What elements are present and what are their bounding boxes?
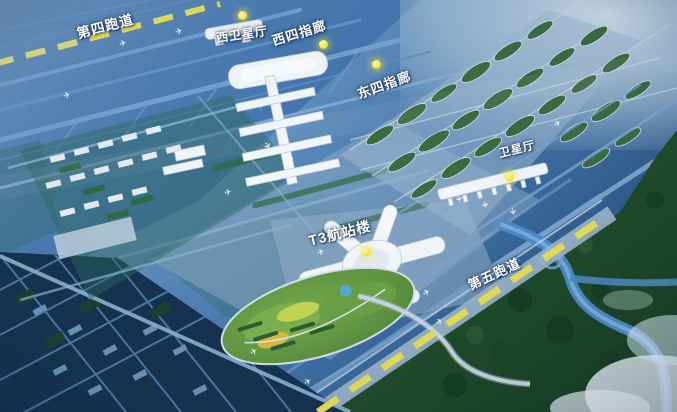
marker-dot-east-satellite-icon [505, 172, 514, 181]
marker-dot-east-pier4-icon [372, 60, 381, 69]
airport-masterplan-rendering: ✈ ✈ ✈ ✈ ✈ ✈ ✈ ✈ ✈ ✈ ✈ ✈ ✈ ✈ ✈ ✈ 第四跑道 西卫星… [0, 0, 677, 412]
clouds-and-glare [0, 0, 677, 412]
marker-dot-t3-icon [362, 247, 371, 256]
aerial-map-artwork: ✈ ✈ ✈ ✈ ✈ ✈ ✈ ✈ ✈ ✈ ✈ ✈ ✈ ✈ ✈ ✈ [0, 0, 677, 412]
marker-dot-west-satellite-icon [238, 11, 247, 20]
marker-dot-west-pier4-icon [319, 40, 328, 49]
